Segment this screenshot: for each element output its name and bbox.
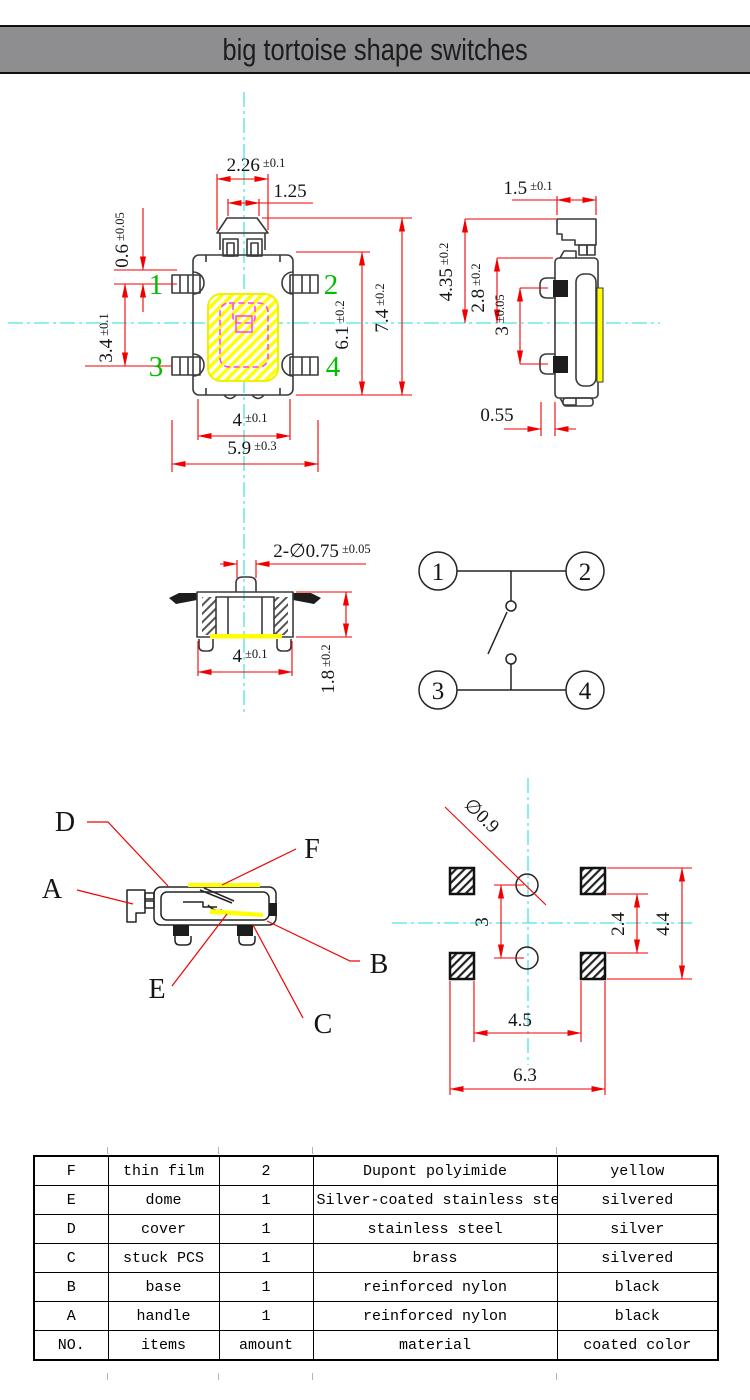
grid-tick — [218, 1373, 219, 1380]
dim-side-upper-height: 2.8±0.2 — [468, 263, 489, 312]
bottom-view: 2-∅0.75±0.05 4±0.1 1.8±0.2 — [169, 541, 371, 694]
film-strip — [210, 634, 282, 639]
terminal-label-4: 4 — [579, 678, 592, 705]
table-cell: items — [108, 1331, 219, 1361]
table-cell: 1 — [219, 1244, 313, 1273]
table-cell: Dupont polyimide — [313, 1156, 557, 1186]
part-label-E: E — [148, 974, 165, 1005]
table-cell: black — [557, 1273, 718, 1302]
dim-pad-gap-v: 2.4 — [608, 912, 629, 936]
table-row: F thin film 2 Dupont polyimide yellow — [34, 1156, 718, 1186]
table-row: C stuck PCS 1 brass silvered — [34, 1244, 718, 1273]
table-row: E dome 1 Silver-coated stainless steel s… — [34, 1186, 718, 1215]
film-edge — [597, 288, 603, 382]
table-cell: stainless steel — [313, 1215, 557, 1244]
table-cell: amount — [219, 1331, 313, 1361]
dim-body-height: 6.1±0.2 — [332, 300, 353, 349]
part-label-C: C — [314, 1009, 333, 1040]
table-cell: stuck PCS — [108, 1244, 219, 1273]
table-cell: E — [34, 1186, 108, 1215]
pin-number-1: 1 — [149, 269, 164, 301]
side-view: 1.5±0.1 4.35±0.2 2.8±0.2 3±0.05 0.55 — [436, 178, 603, 436]
dim-bottom-body-height: 1.8±0.2 — [318, 644, 339, 693]
wing-right — [293, 593, 321, 604]
dim-cap-top-width: 1.25 — [273, 181, 306, 202]
table-cell: 1 — [219, 1186, 313, 1215]
table-cell: 2 — [219, 1156, 313, 1186]
table-cell: NO. — [34, 1331, 108, 1361]
terminal-label-3: 3 — [432, 678, 445, 705]
dim-total-height: 7.4±0.2 — [372, 283, 393, 332]
wing-left — [169, 593, 197, 604]
grid-tick — [107, 1373, 108, 1380]
table-cell: dome — [108, 1186, 219, 1215]
dim-total-width: 5.9±0.3 — [227, 438, 276, 459]
section-hatch-left — [202, 597, 216, 635]
dim-bottom-base-width: 4±0.1 — [233, 646, 268, 667]
grid-tick — [556, 1373, 557, 1380]
table-row: B base 1 reinforced nylon black — [34, 1273, 718, 1302]
dim-base-width: 4±0.1 — [233, 410, 268, 431]
film-inner — [210, 909, 263, 917]
datasheet-page: big tortoise shape switches — [0, 0, 750, 1400]
pad-top-right — [581, 868, 605, 894]
pin-contact-upper — [553, 280, 568, 297]
dim-cap-width: 2.26±0.1 — [227, 155, 286, 176]
table-cell: 1 — [219, 1273, 313, 1302]
foot-contact-right — [237, 925, 253, 936]
table-cell: Silver-coated stainless steel — [313, 1186, 557, 1215]
table-cell: yellow — [557, 1156, 718, 1186]
table-cell: A — [34, 1302, 108, 1331]
table-cell: brass — [313, 1244, 557, 1273]
grid-tick — [556, 1147, 557, 1154]
part-label-D: D — [55, 807, 75, 838]
table-cell: thin film — [108, 1156, 219, 1186]
table-cell: B — [34, 1273, 108, 1302]
pad-bottom-right — [581, 953, 605, 979]
table-cell: coated color — [557, 1331, 718, 1361]
table-row: A handle 1 reinforced nylon black — [34, 1302, 718, 1331]
dim-side-total-height: 4.35±0.2 — [436, 243, 457, 302]
pcb-footprint: ∅0.9 3 2.4 4.4 4.5 6.3 — [445, 794, 692, 1095]
table-cell: silvered — [557, 1186, 718, 1215]
pin-number-3: 3 — [149, 351, 164, 383]
table-row: D cover 1 stainless steel silver — [34, 1215, 718, 1244]
switch-contact-top — [506, 601, 516, 611]
pad-top-left — [450, 868, 474, 894]
dim-side-pin-pitch: 3±0.05 — [492, 294, 513, 335]
circuit-schematic: 1 2 3 4 — [419, 552, 604, 709]
side-outline — [540, 219, 598, 406]
table-cell: C — [34, 1244, 108, 1273]
part-label-F: F — [304, 834, 320, 865]
dim-pin-top: 0.6±0.05 — [112, 212, 133, 268]
grid-tick — [218, 1147, 219, 1154]
pin-number-4: 4 — [326, 351, 341, 383]
table-cell: silvered — [557, 1244, 718, 1273]
table-cell: silver — [557, 1215, 718, 1244]
table-cell: reinforced nylon — [313, 1273, 557, 1302]
table-cell: 1 — [219, 1302, 313, 1331]
table-cell: material — [313, 1331, 557, 1361]
dim-pin-pitch: 3.4±0.1 — [96, 313, 117, 362]
dim-hole-pitch: 3 — [472, 917, 493, 927]
pad-bottom-left — [450, 953, 474, 979]
pin-contact-lower — [553, 356, 568, 373]
dim-side-cap-width: 1.5±0.1 — [503, 178, 552, 199]
dim-pad-span-v: 4.4 — [653, 912, 674, 936]
grid-tick — [312, 1147, 313, 1154]
pin-right — [269, 903, 277, 916]
table-cell: base — [108, 1273, 219, 1302]
terminal-label-1: 1 — [432, 559, 445, 586]
part-label-A: A — [42, 874, 63, 905]
dim-hole-dia: ∅0.9 — [460, 794, 504, 837]
foot-contact-left — [173, 925, 189, 936]
terminal-label-2: 2 — [579, 559, 592, 586]
table-cell: handle — [108, 1302, 219, 1331]
table-cell: cover — [108, 1215, 219, 1244]
grid-tick — [312, 1373, 313, 1380]
table-cell: 1 — [219, 1215, 313, 1244]
table-row: NO. items amount material coated color — [34, 1331, 718, 1361]
parts-table: F thin film 2 Dupont polyimide yellow E … — [33, 1155, 719, 1361]
table-cell: reinforced nylon — [313, 1302, 557, 1331]
table-cell: black — [557, 1302, 718, 1331]
dim-stem-holes: 2-∅0.75±0.05 — [273, 541, 370, 562]
exploded-side-view: D F A E B C — [42, 807, 388, 1040]
dim-pad-outer-h: 6.3 — [513, 1065, 537, 1086]
dim-side-pin-length: 0.55 — [480, 405, 513, 426]
grid-tick — [107, 1147, 108, 1154]
pin-number-2: 2 — [324, 269, 339, 301]
footprint-dimensions: ∅0.9 3 2.4 4.4 4.5 6.3 — [445, 794, 692, 1095]
table-cell: F — [34, 1156, 108, 1186]
table-cell: D — [34, 1215, 108, 1244]
part-label-B: B — [370, 949, 389, 980]
front-view: 2.26±0.1 1.25 0.6±0.05 3.4±0.1 6.1±0.2 7… — [85, 155, 412, 472]
dim-pad-inner-h: 4.5 — [508, 1010, 532, 1031]
section-hatch-right — [274, 597, 288, 635]
switch-contact-bottom — [506, 654, 516, 664]
